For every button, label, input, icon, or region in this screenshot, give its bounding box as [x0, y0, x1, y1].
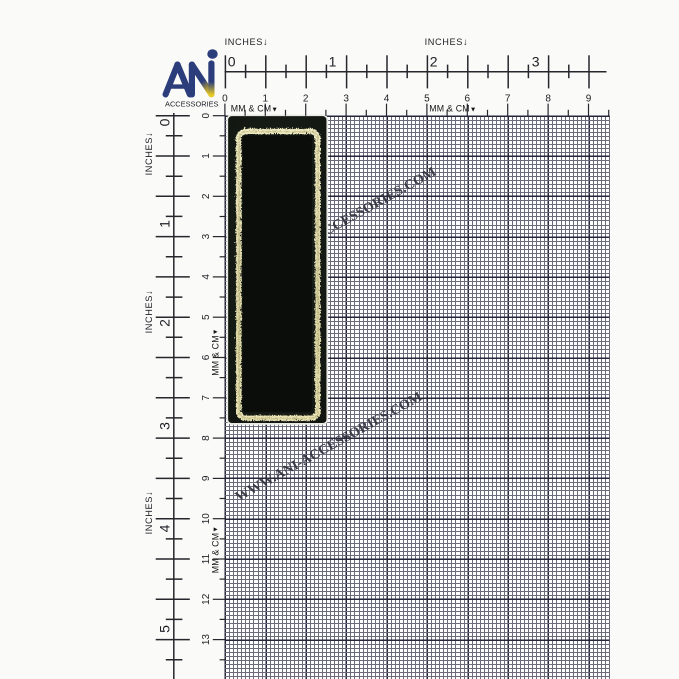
- svg-text:ACCESSORIES: ACCESSORIES: [165, 100, 219, 109]
